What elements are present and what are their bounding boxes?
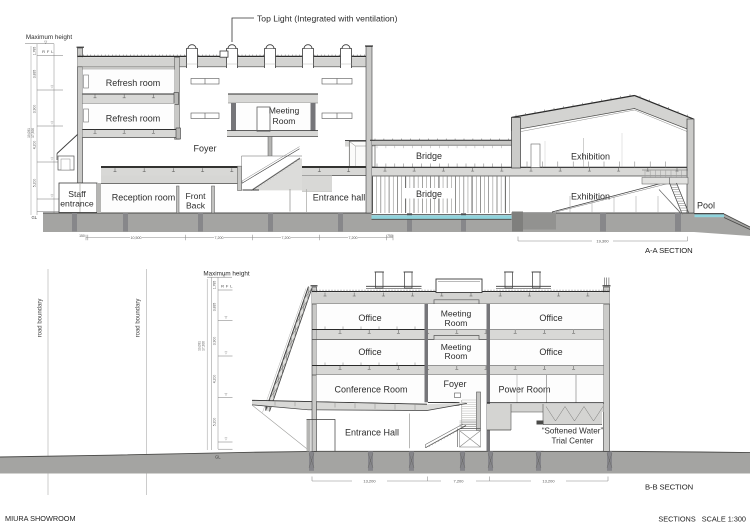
svg-text:Room: Room bbox=[273, 116, 296, 126]
svg-text:R F L: R F L bbox=[221, 284, 233, 289]
svg-text:GL: GL bbox=[32, 215, 38, 220]
svg-text:Bridge: Bridge bbox=[416, 151, 442, 161]
svg-text:Exhibition: Exhibition bbox=[571, 152, 610, 162]
svg-text:“Softened Water”: “Softened Water” bbox=[542, 427, 604, 436]
svg-text:Foyer: Foyer bbox=[443, 379, 466, 389]
svg-text:Maximum height: Maximum height bbox=[203, 271, 249, 278]
svg-text:Office: Office bbox=[358, 347, 381, 357]
svg-text:1,785: 1,785 bbox=[33, 47, 37, 56]
svg-text:Meeting: Meeting bbox=[269, 106, 300, 116]
svg-text:Back: Back bbox=[186, 201, 206, 211]
svg-text:4,200: 4,200 bbox=[213, 375, 217, 384]
svg-text:A-A SECTION: A-A SECTION bbox=[645, 246, 693, 255]
svg-text:SECTIONS SCALE 1:300: SECTIONS SCALE 1:300 bbox=[658, 515, 746, 524]
svg-text:road boundary: road boundary bbox=[136, 299, 142, 338]
svg-text:3,900: 3,900 bbox=[33, 105, 37, 114]
svg-text:Office: Office bbox=[539, 313, 562, 323]
svg-text:3,835: 3,835 bbox=[33, 70, 37, 79]
svg-text:17,306: 17,306 bbox=[31, 128, 35, 138]
svg-text:750: 750 bbox=[387, 234, 393, 238]
svg-text:Top Light (Integrated with ven: Top Light (Integrated with ventilation) bbox=[257, 13, 398, 23]
svg-text:Front: Front bbox=[185, 191, 206, 201]
svg-text:3,835: 3,835 bbox=[213, 303, 217, 312]
svg-text:road boundary: road boundary bbox=[38, 299, 44, 338]
svg-text:Pool: Pool bbox=[697, 201, 715, 211]
svg-text:Trial Center: Trial Center bbox=[552, 436, 594, 445]
svg-text:Room: Room bbox=[445, 351, 468, 361]
svg-text:Foyer: Foyer bbox=[193, 144, 216, 154]
svg-text:Office: Office bbox=[539, 347, 562, 357]
svg-text:Refresh room: Refresh room bbox=[106, 78, 161, 88]
svg-text:MIURA SHOWROOM: MIURA SHOWROOM bbox=[5, 514, 76, 523]
svg-text:10,500: 10,500 bbox=[131, 236, 142, 240]
svg-text:entrance: entrance bbox=[60, 198, 94, 208]
svg-text:GL: GL bbox=[215, 455, 221, 460]
svg-text:Power Room: Power Room bbox=[498, 385, 550, 395]
svg-text:1,785: 1,785 bbox=[213, 281, 217, 290]
svg-text:R F L: R F L bbox=[42, 49, 54, 54]
svg-text:B-B SECTION: B-B SECTION bbox=[645, 483, 693, 492]
svg-text:Office: Office bbox=[358, 313, 381, 323]
svg-text:Reception room: Reception room bbox=[112, 193, 176, 203]
svg-text:Maximum height: Maximum height bbox=[26, 34, 72, 41]
svg-text:5,200: 5,200 bbox=[33, 179, 37, 188]
svg-text:Refresh room: Refresh room bbox=[106, 113, 161, 123]
svg-text:5,200: 5,200 bbox=[213, 418, 217, 427]
svg-text:Conference Room: Conference Room bbox=[334, 385, 407, 395]
svg-text:4,200: 4,200 bbox=[33, 141, 37, 150]
svg-text:Entrance Hall: Entrance Hall bbox=[345, 428, 399, 438]
svg-text:17,306: 17,306 bbox=[202, 341, 206, 351]
svg-text:13,200: 13,200 bbox=[363, 478, 376, 483]
svg-text:Room: Room bbox=[445, 318, 468, 328]
svg-text:7,200: 7,200 bbox=[453, 478, 464, 483]
svg-text:19,300: 19,300 bbox=[596, 239, 609, 244]
svg-text:7,200: 7,200 bbox=[282, 236, 291, 240]
svg-text:Entrance hall: Entrance hall bbox=[313, 193, 366, 203]
svg-text:3,900: 3,900 bbox=[213, 337, 217, 346]
svg-text:Bridge: Bridge bbox=[416, 189, 442, 199]
svg-text:13,200: 13,200 bbox=[542, 478, 555, 483]
svg-text:7,200: 7,200 bbox=[349, 236, 358, 240]
svg-text:150: 150 bbox=[79, 234, 85, 238]
svg-text:7,200: 7,200 bbox=[215, 236, 224, 240]
